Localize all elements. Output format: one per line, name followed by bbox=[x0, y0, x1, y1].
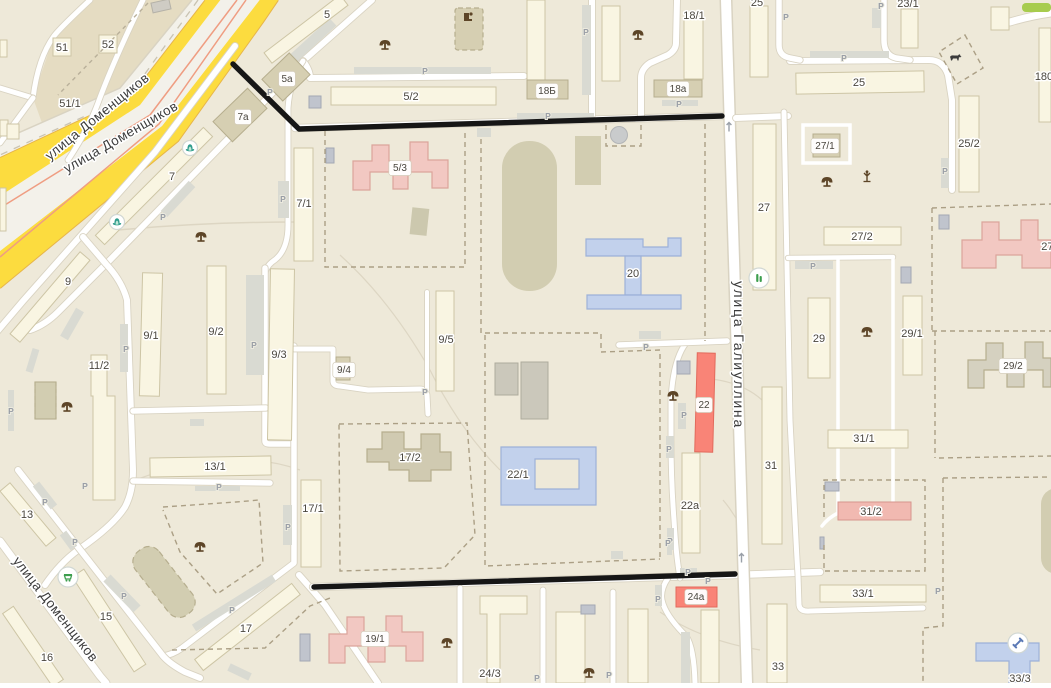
svg-text:5/2: 5/2 bbox=[403, 91, 418, 103]
svg-text:P: P bbox=[8, 406, 14, 416]
svg-text:P: P bbox=[606, 670, 612, 680]
svg-text:P: P bbox=[72, 537, 78, 547]
svg-text:17/1: 17/1 bbox=[302, 503, 323, 515]
svg-text:7а: 7а bbox=[237, 112, 249, 123]
svg-text:5а: 5а bbox=[281, 74, 293, 85]
svg-text:27/1: 27/1 bbox=[815, 141, 835, 152]
svg-text:19/1: 19/1 bbox=[365, 634, 385, 645]
svg-text:P: P bbox=[841, 53, 847, 63]
svg-text:17: 17 bbox=[240, 623, 252, 635]
svg-text:11/2: 11/2 bbox=[89, 360, 110, 372]
svg-text:5: 5 bbox=[324, 9, 330, 21]
svg-text:18Б: 18Б bbox=[538, 86, 556, 97]
svg-text:9/2: 9/2 bbox=[208, 326, 223, 338]
svg-text:P: P bbox=[810, 261, 816, 271]
svg-text:13/1: 13/1 bbox=[204, 461, 225, 473]
svg-text:9/1: 9/1 bbox=[143, 330, 158, 342]
svg-text:25: 25 bbox=[853, 77, 865, 89]
svg-text:P: P bbox=[82, 481, 88, 491]
svg-text:25: 25 bbox=[751, 0, 763, 9]
svg-text:P: P bbox=[121, 591, 127, 601]
svg-text:P: P bbox=[942, 166, 948, 176]
svg-text:27/4: 27/4 bbox=[1041, 241, 1051, 253]
svg-text:9/3: 9/3 bbox=[271, 349, 286, 361]
svg-text:улица Галиуллина: улица Галиуллина bbox=[731, 281, 747, 429]
svg-text:P: P bbox=[422, 66, 428, 76]
svg-text:P: P bbox=[783, 12, 789, 22]
svg-text:29: 29 bbox=[813, 333, 825, 345]
svg-text:P: P bbox=[583, 27, 589, 37]
svg-text:P: P bbox=[643, 342, 649, 352]
svg-text:33/1: 33/1 bbox=[852, 588, 873, 600]
svg-text:P: P bbox=[676, 99, 682, 109]
svg-text:22: 22 bbox=[698, 400, 710, 411]
svg-text:29/2: 29/2 bbox=[1003, 361, 1023, 372]
svg-text:31: 31 bbox=[765, 460, 777, 472]
svg-text:P: P bbox=[705, 576, 711, 586]
svg-text:29/1: 29/1 bbox=[901, 328, 922, 340]
svg-text:20: 20 bbox=[627, 268, 639, 280]
svg-text:P: P bbox=[42, 497, 48, 507]
svg-text:7: 7 bbox=[169, 171, 175, 183]
svg-text:P: P bbox=[545, 111, 551, 121]
svg-text:24/3: 24/3 bbox=[479, 668, 500, 680]
svg-text:51: 51 bbox=[56, 42, 68, 54]
svg-text:P: P bbox=[685, 567, 691, 577]
svg-text:15: 15 bbox=[100, 611, 112, 623]
svg-text:P: P bbox=[665, 538, 671, 548]
svg-text:18/1: 18/1 bbox=[683, 10, 704, 22]
svg-text:9/4: 9/4 bbox=[337, 365, 351, 376]
svg-text:22а: 22а bbox=[681, 500, 700, 512]
svg-text:P: P bbox=[534, 673, 540, 683]
svg-text:17/2: 17/2 bbox=[399, 452, 420, 464]
svg-text:22/1: 22/1 bbox=[507, 469, 528, 481]
svg-text:P: P bbox=[123, 344, 129, 354]
svg-text:7/1: 7/1 bbox=[296, 198, 311, 210]
svg-text:P: P bbox=[666, 444, 672, 454]
svg-text:P: P bbox=[280, 194, 286, 204]
svg-text:51/1: 51/1 bbox=[59, 98, 80, 110]
svg-text:P: P bbox=[655, 594, 661, 604]
svg-text:9: 9 bbox=[65, 276, 71, 288]
svg-text:31/1: 31/1 bbox=[853, 433, 874, 445]
svg-text:13: 13 bbox=[21, 509, 33, 521]
svg-text:9/5: 9/5 bbox=[438, 334, 453, 346]
svg-text:P: P bbox=[681, 410, 687, 420]
svg-text:5/3: 5/3 bbox=[393, 163, 407, 174]
svg-text:31/2: 31/2 bbox=[860, 506, 881, 518]
svg-text:25/2: 25/2 bbox=[958, 138, 979, 150]
svg-text:P: P bbox=[216, 482, 222, 492]
svg-text:24а: 24а bbox=[688, 592, 705, 603]
svg-text:180: 180 bbox=[1035, 71, 1051, 83]
svg-text:33: 33 bbox=[772, 661, 784, 673]
svg-text:P: P bbox=[878, 1, 884, 11]
svg-text:P: P bbox=[160, 212, 166, 222]
svg-text:27/2: 27/2 bbox=[851, 231, 872, 243]
svg-text:33/3: 33/3 bbox=[1009, 673, 1030, 683]
svg-text:P: P bbox=[285, 522, 291, 532]
svg-text:27: 27 bbox=[758, 202, 770, 214]
svg-text:P: P bbox=[935, 586, 941, 596]
svg-text:P: P bbox=[251, 340, 257, 350]
svg-text:P: P bbox=[229, 605, 235, 615]
svg-text:P: P bbox=[267, 87, 273, 97]
svg-text:18а: 18а bbox=[670, 84, 687, 95]
svg-text:P: P bbox=[422, 387, 428, 397]
svg-text:16: 16 bbox=[41, 652, 53, 664]
svg-text:52: 52 bbox=[102, 39, 114, 51]
svg-text:23/1: 23/1 bbox=[897, 0, 918, 10]
